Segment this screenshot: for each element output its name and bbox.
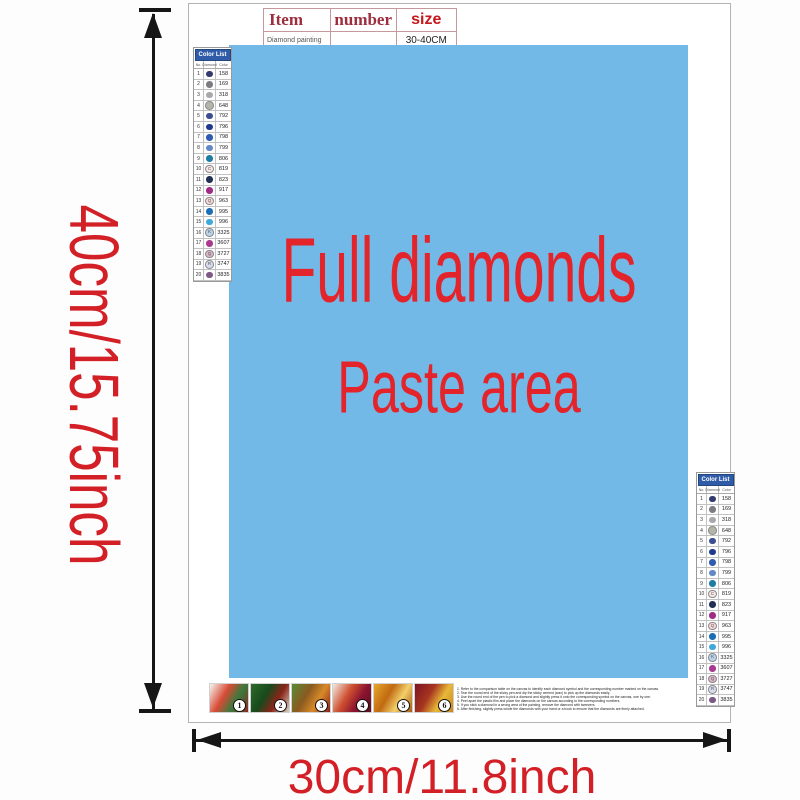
color-code: 917 — [719, 612, 734, 618]
color-code: 158 — [719, 496, 734, 502]
color-list-title: Color List — [698, 474, 734, 486]
width-arrow-line — [196, 739, 727, 742]
diamond-cell — [707, 494, 719, 504]
row-number: 6 — [194, 122, 204, 132]
row-number: 6 — [697, 547, 707, 557]
color-list-row: 4648 — [194, 101, 231, 112]
row-number: 10 — [194, 164, 204, 174]
row-number: 4 — [194, 101, 204, 111]
color-code: 799 — [216, 145, 231, 151]
diamond-cell — [707, 579, 719, 589]
color-list-row: 16K3325 — [697, 653, 734, 664]
diamond-color-dot-icon — [709, 612, 716, 619]
row-number: 9 — [697, 579, 707, 589]
row-number: 10 — [697, 589, 707, 599]
color-code: 3835 — [216, 272, 231, 278]
diamond-color-dot-icon: K — [205, 228, 214, 237]
row-number: 13 — [194, 196, 204, 206]
diamond-color-dot-icon: R — [708, 685, 717, 694]
row-number: 12 — [697, 611, 707, 621]
row-number: 2 — [194, 80, 204, 90]
width-arrow-right-head-icon — [703, 732, 727, 748]
diamond-color-dot-icon — [709, 570, 716, 577]
diamond-cell — [707, 536, 719, 546]
height-arrow-top-cap — [139, 8, 171, 12]
diamond-cell — [707, 558, 719, 568]
color-code: 963 — [216, 198, 231, 204]
header-number: number — [330, 9, 396, 32]
diamond-color-dot-icon — [205, 101, 214, 110]
diamond-color-dot-icon — [206, 124, 213, 131]
row-number: 16 — [194, 228, 204, 238]
step-number-badge: 5 — [397, 699, 410, 712]
row-number: 12 — [194, 186, 204, 196]
diamond-cell: Q — [204, 196, 216, 206]
color-code: 819 — [719, 591, 734, 597]
color-list-row: 11823 — [194, 175, 231, 186]
diamond-color-dot-icon: C — [708, 590, 717, 599]
color-code: 799 — [719, 570, 734, 576]
color-list-row: 6796 — [194, 122, 231, 133]
color-list-row: 203835 — [194, 270, 231, 281]
column-header: Color — [216, 61, 231, 68]
diamond-cell: C — [707, 589, 719, 599]
diamond-color-dot-icon — [206, 176, 213, 183]
color-list-row: 15996 — [194, 217, 231, 228]
diamond-cell: Q — [707, 621, 719, 631]
width-arrow-left-head-icon — [197, 732, 221, 748]
diamond-cell — [707, 515, 719, 525]
color-code: 823 — [216, 177, 231, 183]
diamond-cell — [204, 270, 216, 280]
diamond-cell — [707, 547, 719, 557]
diamond-cell: R — [204, 260, 216, 270]
step-number-badge: 2 — [274, 699, 287, 712]
row-number: 16 — [697, 653, 707, 663]
diamond-cell — [707, 526, 719, 536]
color-code: 823 — [719, 602, 734, 608]
color-list-row: 18Q3727 — [697, 674, 734, 685]
step-number-badge: 6 — [438, 699, 451, 712]
row-number: 7 — [194, 133, 204, 143]
column-header: Color — [719, 486, 734, 493]
height-arrow-down-head-icon — [144, 683, 162, 708]
diamond-color-dot-icon — [206, 134, 213, 141]
color-list-row: 3318 — [194, 90, 231, 101]
color-list-columns: No.DiamondColor — [194, 61, 231, 69]
height-arrow-up-head-icon — [144, 13, 162, 38]
column-header: Diamond — [707, 486, 719, 493]
diamond-cell: K — [204, 228, 216, 238]
header-size: size — [396, 9, 456, 32]
height-arrow-line — [152, 14, 155, 709]
diamond-color-dot-icon — [709, 549, 716, 556]
diamond-color-dot-icon — [709, 580, 716, 587]
color-code: 3747 — [719, 686, 734, 692]
color-code: 995 — [719, 634, 734, 640]
diamond-cell — [707, 632, 719, 642]
diamond-cell — [707, 505, 719, 515]
color-code: 3727 — [719, 676, 734, 682]
row-number: 8 — [697, 568, 707, 578]
color-list-row: 13Q963 — [697, 621, 734, 632]
color-code: 796 — [719, 549, 734, 555]
row-number: 3 — [194, 90, 204, 100]
row-number: 7 — [697, 558, 707, 568]
diamond-cell — [707, 568, 719, 578]
diamond-color-dot-icon — [709, 506, 716, 513]
color-list-row: 7798 — [194, 133, 231, 144]
color-list-row: 9806 — [194, 154, 231, 165]
row-number: 1 — [194, 69, 204, 79]
color-code: 3727 — [216, 251, 231, 257]
color-code: 3835 — [719, 697, 734, 703]
header-item: Item — [264, 9, 331, 32]
instructions-text: 1. Refer to the comparison table on the … — [457, 687, 705, 711]
row-number: 17 — [697, 664, 707, 674]
diamond-cell — [707, 664, 719, 674]
color-list-row: 4648 — [697, 526, 734, 537]
color-code: 3607 — [216, 240, 231, 246]
diamond-cell: R — [707, 685, 719, 695]
paste-area-title: Full diamonds — [281, 219, 636, 324]
step-thumbnail: 6 — [414, 683, 454, 713]
row-number: 8 — [194, 143, 204, 153]
diamond-color-dot-icon: K — [708, 653, 717, 662]
color-list-row: 1158 — [697, 494, 734, 505]
diamond-color-dot-icon — [709, 517, 716, 524]
row-number: 11 — [697, 600, 707, 610]
color-code: 796 — [216, 124, 231, 130]
diamond-cell — [204, 69, 216, 79]
height-arrow-bottom-cap — [139, 709, 171, 713]
paste-area: Full diamonds Paste area — [229, 45, 688, 678]
color-code: 648 — [216, 103, 231, 109]
diamond-color-dot-icon — [709, 559, 716, 566]
color-list-row: 1158 — [194, 69, 231, 80]
column-header: Diamond — [204, 61, 216, 68]
row-number: 13 — [697, 621, 707, 631]
color-list-row: 2169 — [697, 505, 734, 516]
color-list-row: 173607 — [697, 664, 734, 675]
diamond-cell — [204, 207, 216, 217]
diamond-cell — [204, 239, 216, 249]
color-code: 995 — [216, 209, 231, 215]
color-list-columns: No.DiamondColor — [697, 486, 734, 494]
color-list-row: 19R3747 — [194, 260, 231, 271]
row-number: 18 — [697, 674, 707, 684]
color-list-row: 13Q963 — [194, 196, 231, 207]
diamond-color-dot-icon — [709, 601, 716, 608]
diamond-color-dot-icon — [709, 496, 716, 503]
color-list-row: 7798 — [697, 558, 734, 569]
color-code: 996 — [719, 644, 734, 650]
diamond-cell: Q — [707, 674, 719, 684]
color-code: 169 — [719, 506, 734, 512]
color-list-row: 8799 — [697, 568, 734, 579]
color-code: 3607 — [719, 665, 734, 671]
row-number: 3 — [697, 515, 707, 525]
row-number: 5 — [697, 536, 707, 546]
row-number: 5 — [194, 111, 204, 121]
step-thumbnail: 1 — [209, 683, 249, 713]
diamond-cell — [204, 154, 216, 164]
diamond-cell — [204, 80, 216, 90]
row-number: 18 — [194, 249, 204, 259]
diamond-cell — [204, 90, 216, 100]
diamond-color-dot-icon — [709, 644, 716, 651]
color-list-row: 18Q3727 — [194, 249, 231, 260]
diamond-cell — [707, 695, 719, 705]
product-diagram: 40cm/15.75inch Item number size Diamond … — [0, 0, 800, 800]
color-list-row: 2169 — [194, 80, 231, 91]
row-number: 17 — [194, 239, 204, 249]
diamond-color-dot-icon — [708, 526, 717, 535]
step-thumbnail: 5 — [373, 683, 413, 713]
step-number-badge: 3 — [315, 699, 328, 712]
diamond-color-dot-icon — [206, 71, 213, 78]
row-number: 14 — [697, 632, 707, 642]
color-code: 3325 — [719, 655, 734, 661]
diamond-color-dot-icon — [206, 92, 213, 99]
height-dimension-label: 40cm/15.75inch — [54, 205, 134, 566]
diamond-cell — [204, 175, 216, 185]
color-list-row: 14995 — [697, 632, 734, 643]
diamond-cell: Q — [204, 249, 216, 259]
diamond-color-dot-icon — [206, 155, 213, 162]
instruction-line: 6. After finishing, slightly press whole… — [457, 707, 705, 711]
row-number: 11 — [194, 175, 204, 185]
diamond-color-dot-icon — [206, 145, 213, 152]
color-list-row: 8799 — [194, 143, 231, 154]
color-code: 169 — [216, 81, 231, 87]
color-code: 806 — [216, 156, 231, 162]
width-arrow-right-cap — [727, 729, 731, 752]
color-list-row: 6796 — [697, 547, 734, 558]
color-list-row: 173607 — [194, 239, 231, 250]
diamond-color-dot-icon: Q — [205, 250, 214, 259]
row-number: 20 — [194, 270, 204, 280]
diamond-color-dot-icon: R — [205, 260, 214, 269]
step-thumbnail: 4 — [332, 683, 372, 713]
color-code: 806 — [719, 581, 734, 587]
item-size-table: Item number size Diamond painting 30-40C… — [263, 8, 457, 49]
diamond-cell: C — [204, 164, 216, 174]
color-code: 963 — [719, 623, 734, 629]
diamond-color-dot-icon: Q — [708, 622, 717, 631]
color-list-row: 5792 — [697, 536, 734, 547]
diamond-color-dot-icon — [206, 113, 213, 120]
diamond-color-dot-icon: C — [205, 165, 214, 174]
color-list-row: 12917 — [697, 611, 734, 622]
color-code: 819 — [216, 166, 231, 172]
color-code: 318 — [216, 92, 231, 98]
color-list-row: 11823 — [697, 600, 734, 611]
color-code: 318 — [719, 517, 734, 523]
color-list-row: 5792 — [194, 111, 231, 122]
diamond-color-dot-icon — [206, 187, 213, 194]
color-code: 798 — [719, 559, 734, 565]
diamond-color-dot-icon — [709, 538, 716, 545]
step-thumbnails: 123456 — [209, 683, 454, 713]
color-code: 792 — [719, 538, 734, 544]
row-number: 15 — [194, 217, 204, 227]
diamond-cell — [204, 217, 216, 227]
diamond-cell — [707, 642, 719, 652]
color-list-row: 10C819 — [697, 589, 734, 600]
color-list-row: 9806 — [697, 579, 734, 590]
color-code: 158 — [216, 71, 231, 77]
step-thumbnail: 3 — [291, 683, 331, 713]
color-code: 996 — [216, 219, 231, 225]
diamond-cell — [204, 133, 216, 143]
diamond-color-dot-icon: Q — [205, 197, 214, 206]
color-list-title: Color List — [195, 49, 231, 61]
color-list-row: 14995 — [194, 207, 231, 218]
color-list-right: Color ListNo.DiamondColor115821693318464… — [696, 472, 735, 707]
row-number: 15 — [697, 642, 707, 652]
diamond-cell — [204, 143, 216, 153]
diamond-cell — [707, 600, 719, 610]
diamond-color-dot-icon — [709, 665, 716, 672]
color-list-row: 12917 — [194, 186, 231, 197]
row-number: 4 — [697, 526, 707, 536]
diamond-color-dot-icon: Q — [708, 675, 717, 684]
step-thumbnail: 2 — [250, 683, 290, 713]
diamond-cell: K — [707, 653, 719, 663]
step-number-badge: 4 — [356, 699, 369, 712]
diamond-color-dot-icon — [206, 272, 213, 279]
color-list-row: 15996 — [697, 642, 734, 653]
diamond-color-dot-icon — [206, 208, 213, 215]
row-number: 9 — [194, 154, 204, 164]
row-number: 14 — [194, 207, 204, 217]
color-list-row: 16K3325 — [194, 228, 231, 239]
step-number-badge: 1 — [233, 699, 246, 712]
row-number: 19 — [194, 260, 204, 270]
color-code: 792 — [216, 113, 231, 119]
diamond-color-dot-icon — [206, 240, 213, 247]
diamond-cell — [707, 611, 719, 621]
diamond-color-dot-icon — [709, 633, 716, 640]
diamond-cell — [204, 111, 216, 121]
diamond-color-dot-icon — [206, 219, 213, 226]
diamond-cell — [204, 186, 216, 196]
paste-area-subtitle: Paste area — [337, 345, 580, 430]
color-code: 3747 — [216, 261, 231, 267]
diamond-color-dot-icon — [206, 81, 213, 88]
color-code: 648 — [719, 528, 734, 534]
width-dimension-label: 30cm/11.8inch — [288, 750, 597, 800]
diamond-color-dot-icon — [709, 697, 716, 704]
color-list-row: 10C819 — [194, 164, 231, 175]
color-code: 3325 — [216, 230, 231, 236]
table-header-row: Item number size — [264, 9, 457, 32]
color-code: 798 — [216, 134, 231, 140]
diamond-cell — [204, 101, 216, 111]
canvas-sheet: Item number size Diamond painting 30-40C… — [188, 3, 731, 723]
color-list-left: Color ListNo.DiamondColor115821693318464… — [193, 47, 232, 282]
row-number: 2 — [697, 505, 707, 515]
row-number: 1 — [697, 494, 707, 504]
diamond-cell — [204, 122, 216, 132]
color-code: 917 — [216, 187, 231, 193]
color-list-row: 3318 — [697, 515, 734, 526]
